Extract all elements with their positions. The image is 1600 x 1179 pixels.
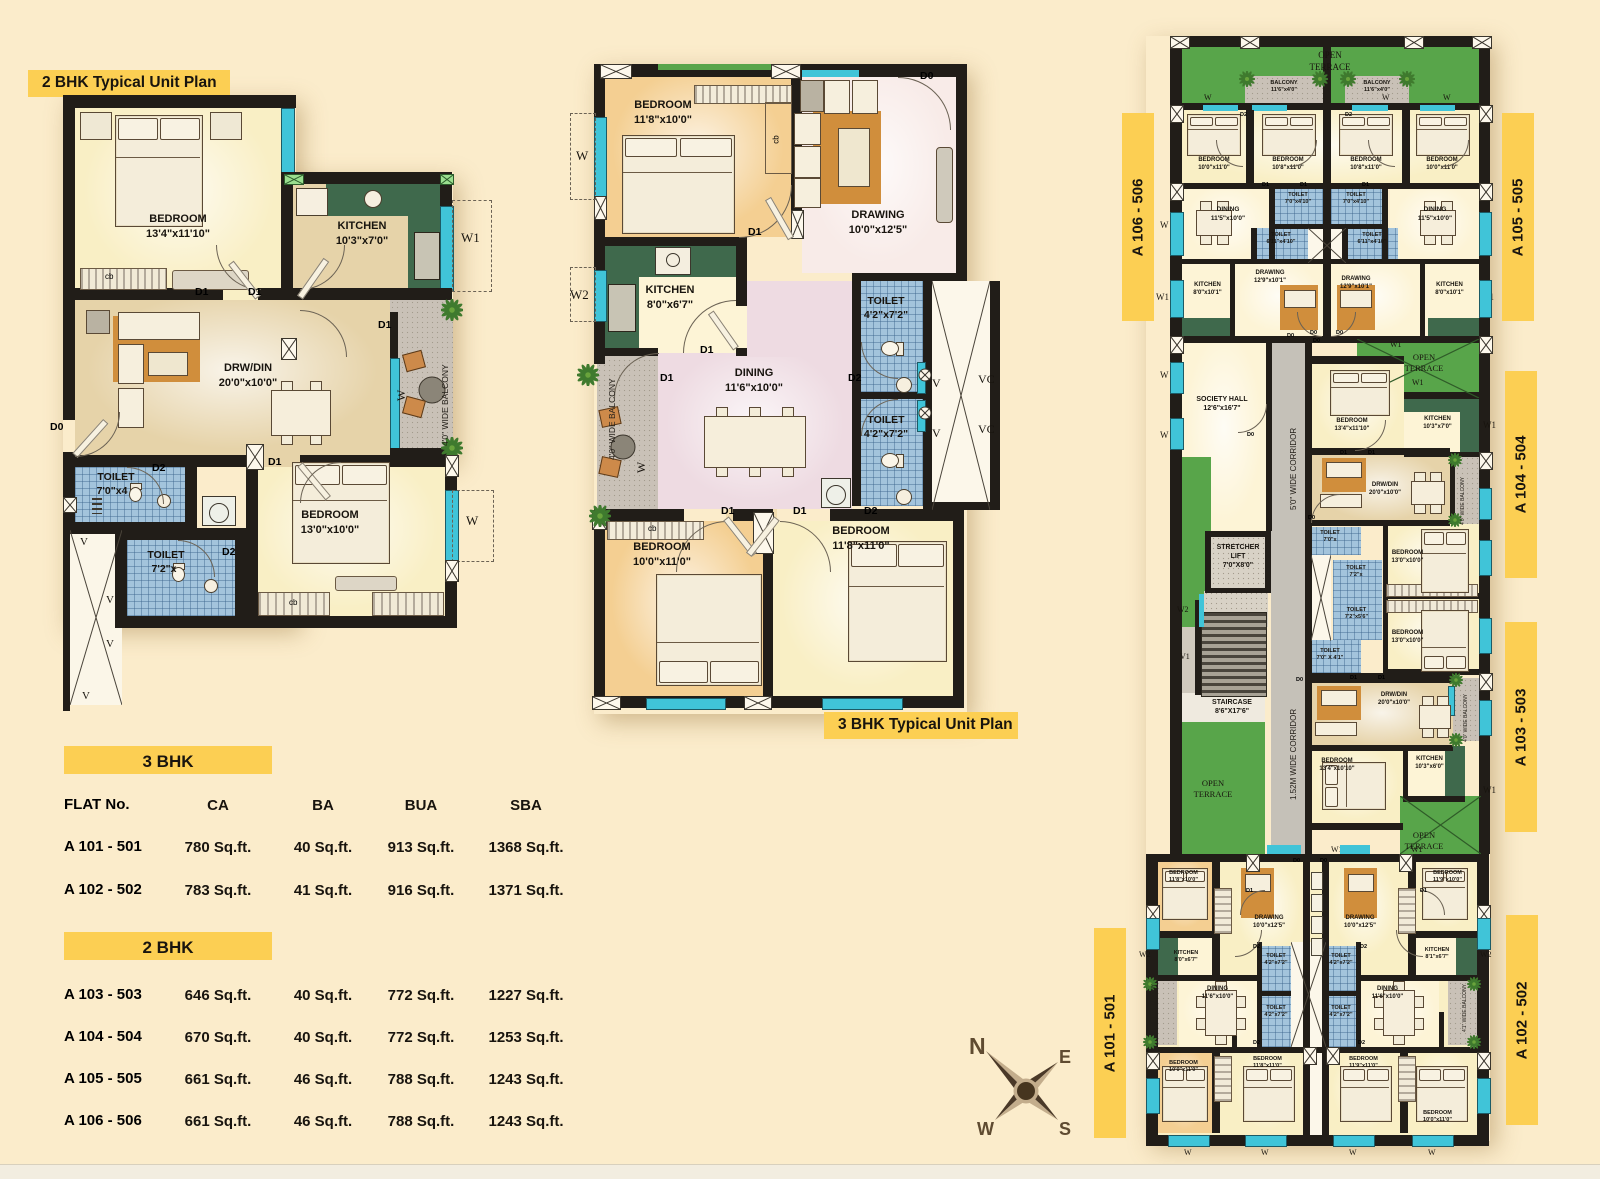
svg-text:E: E xyxy=(1059,1047,1071,1067)
svg-text:S: S xyxy=(1059,1119,1071,1139)
svg-text:N: N xyxy=(969,1033,986,1059)
svg-text:W: W xyxy=(977,1119,994,1139)
